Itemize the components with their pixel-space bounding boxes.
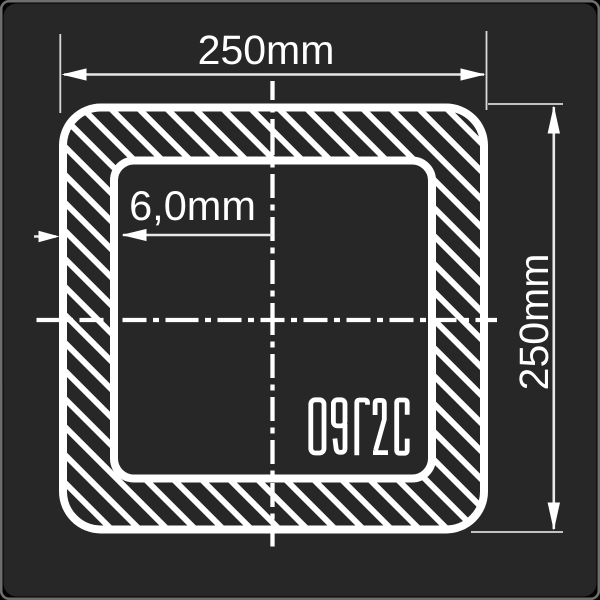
svg-text:250mm: 250mm (511, 254, 557, 391)
svg-text:250mm: 250mm (198, 27, 335, 73)
svg-text:6,0mm: 6,0mm (129, 182, 256, 229)
